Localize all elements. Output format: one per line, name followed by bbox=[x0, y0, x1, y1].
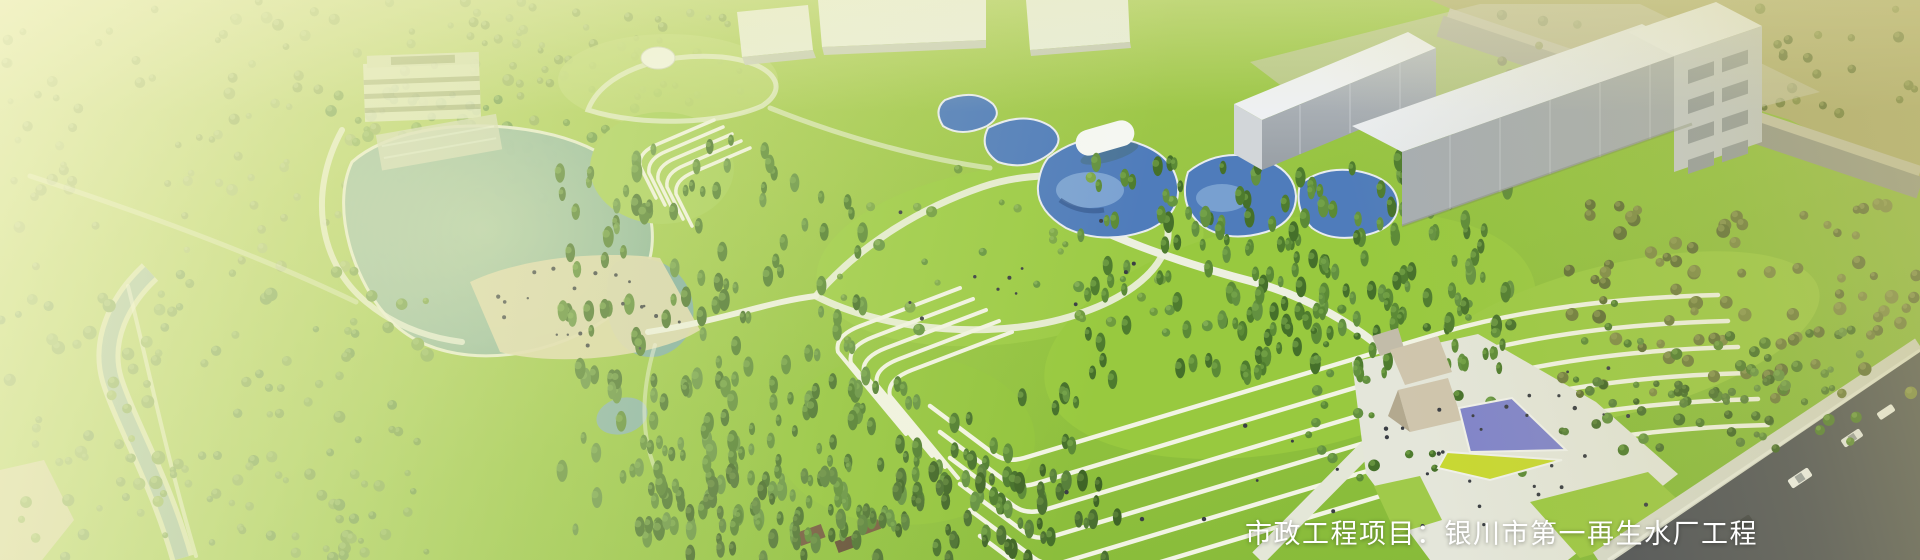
aerial-rendering-banner: 市政工程项目：银川市第一再生水厂工程 bbox=[0, 0, 1920, 560]
dome-pavilion bbox=[641, 47, 675, 69]
image-caption: 市政工程项目：银川市第一再生水厂工程 bbox=[1245, 512, 1758, 551]
aerial-rendering-svg bbox=[0, 0, 1920, 560]
